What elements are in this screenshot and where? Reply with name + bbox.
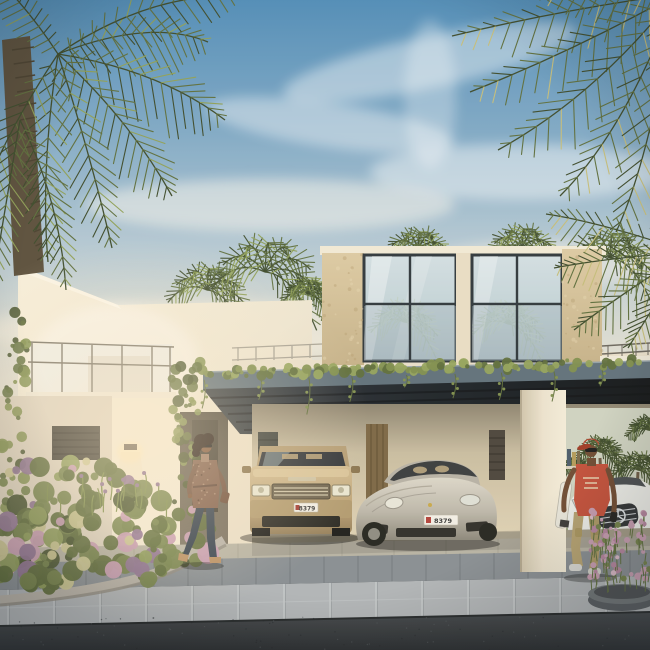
vignette: [0, 0, 650, 650]
scene-canvas: 8379 8379: [0, 0, 650, 650]
villa-rendering: 8379 8379: [0, 0, 650, 650]
